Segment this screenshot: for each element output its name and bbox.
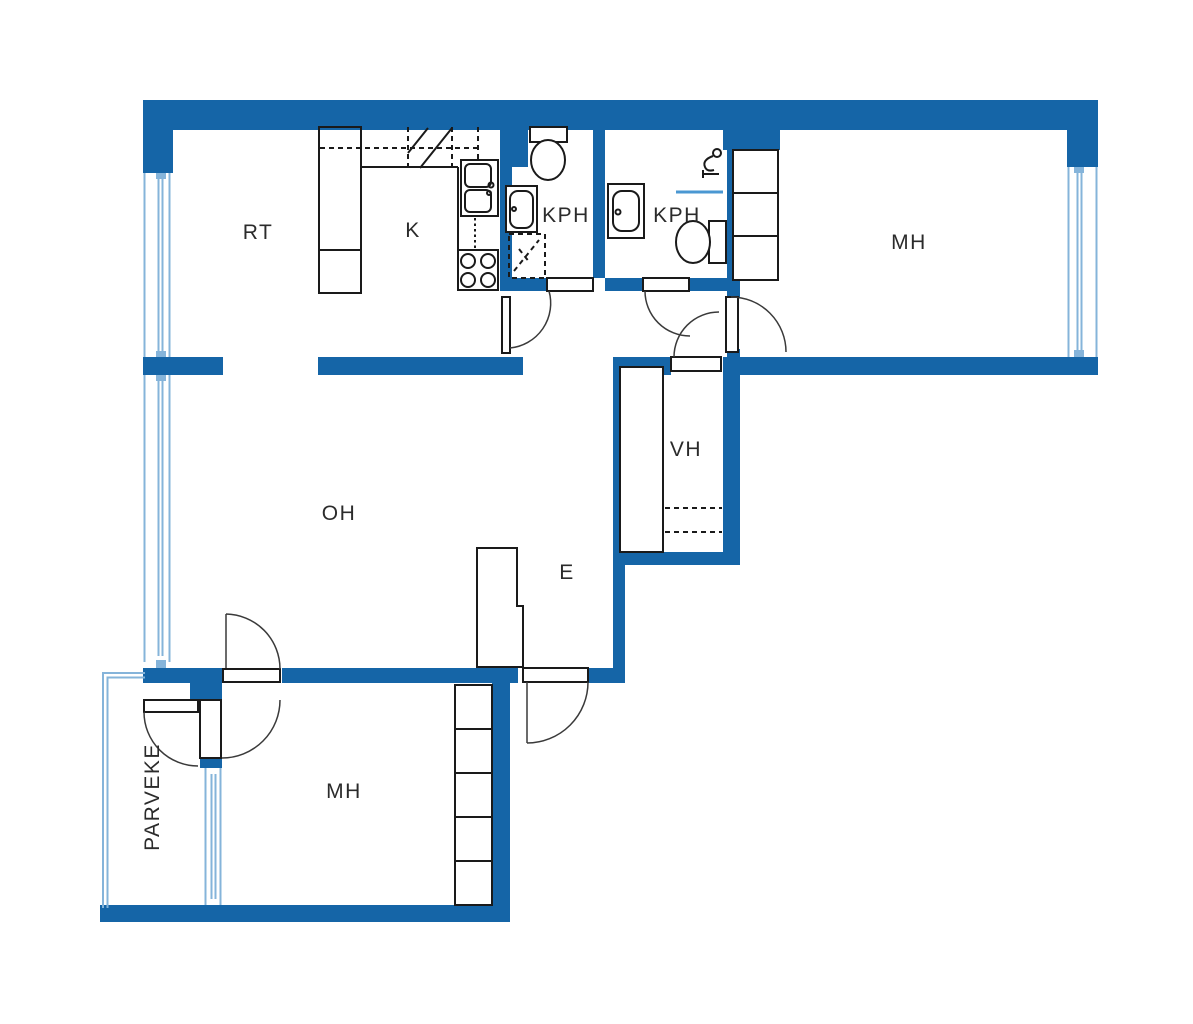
room-label-oh: OH xyxy=(322,502,357,526)
stove-icon xyxy=(458,250,498,290)
door-kph-right xyxy=(643,278,690,336)
room-label-rt: RT xyxy=(243,221,274,245)
room-label-mh-bottom: MH xyxy=(326,780,362,804)
wardrobe-e xyxy=(477,548,523,667)
washbasin-icon-left xyxy=(506,186,537,232)
window-mh-top xyxy=(1069,167,1097,357)
window-rt xyxy=(145,173,170,357)
kitchen-counter xyxy=(319,127,478,293)
room-label-vh: VH xyxy=(670,438,702,462)
room-label-mh-top: MH xyxy=(891,231,927,255)
window-mh-balcony xyxy=(206,768,221,905)
window-oh xyxy=(145,375,170,668)
wardrobe-mh-bottom xyxy=(455,685,492,905)
kitchen-sink-icon xyxy=(461,160,498,216)
room-label-parveke: PARVEKE xyxy=(141,743,165,851)
room-label-k: K xyxy=(405,219,421,243)
balcony-railing xyxy=(103,673,145,908)
room-label-e: E xyxy=(559,561,575,585)
door-vh xyxy=(671,312,721,371)
shower-icon xyxy=(703,149,721,178)
door-mh-top xyxy=(726,297,786,352)
washbasin-icon-right xyxy=(608,184,644,238)
toilet-icon-left xyxy=(530,127,567,180)
floor-plan-drawing xyxy=(0,0,1193,1024)
front-door xyxy=(523,668,588,743)
washing-machine-icon xyxy=(509,234,545,278)
room-label-kph-left: KPH xyxy=(542,204,590,228)
door-oh-mh xyxy=(223,614,280,682)
room-label-kph-right: KPH xyxy=(653,204,701,228)
wardrobe-mh-top xyxy=(733,150,778,280)
floor-plan: RT K KPH KPH MH VH OH E MH PARVEKE xyxy=(0,0,1193,1024)
